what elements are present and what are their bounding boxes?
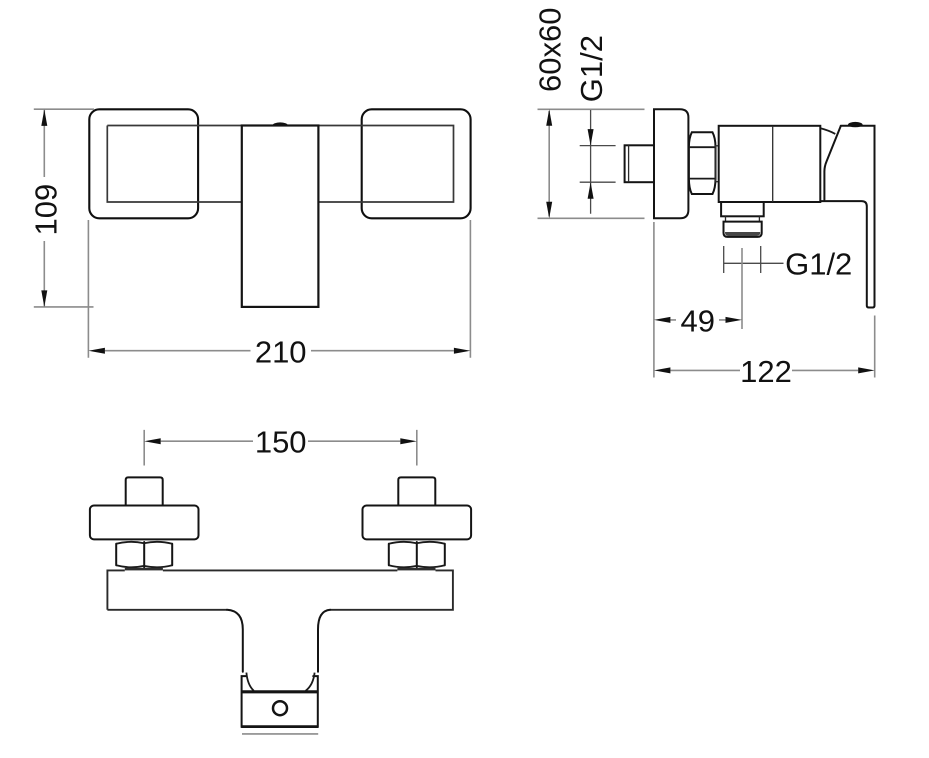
svg-text:150: 150: [255, 425, 307, 460]
svg-text:122: 122: [740, 354, 792, 389]
svg-text:49: 49: [680, 303, 714, 338]
svg-text:109: 109: [28, 184, 63, 236]
svg-text:60x60: 60x60: [533, 8, 568, 92]
svg-text:210: 210: [255, 335, 307, 370]
svg-text:G1/2: G1/2: [574, 35, 609, 102]
svg-text:G1/2: G1/2: [785, 246, 852, 281]
